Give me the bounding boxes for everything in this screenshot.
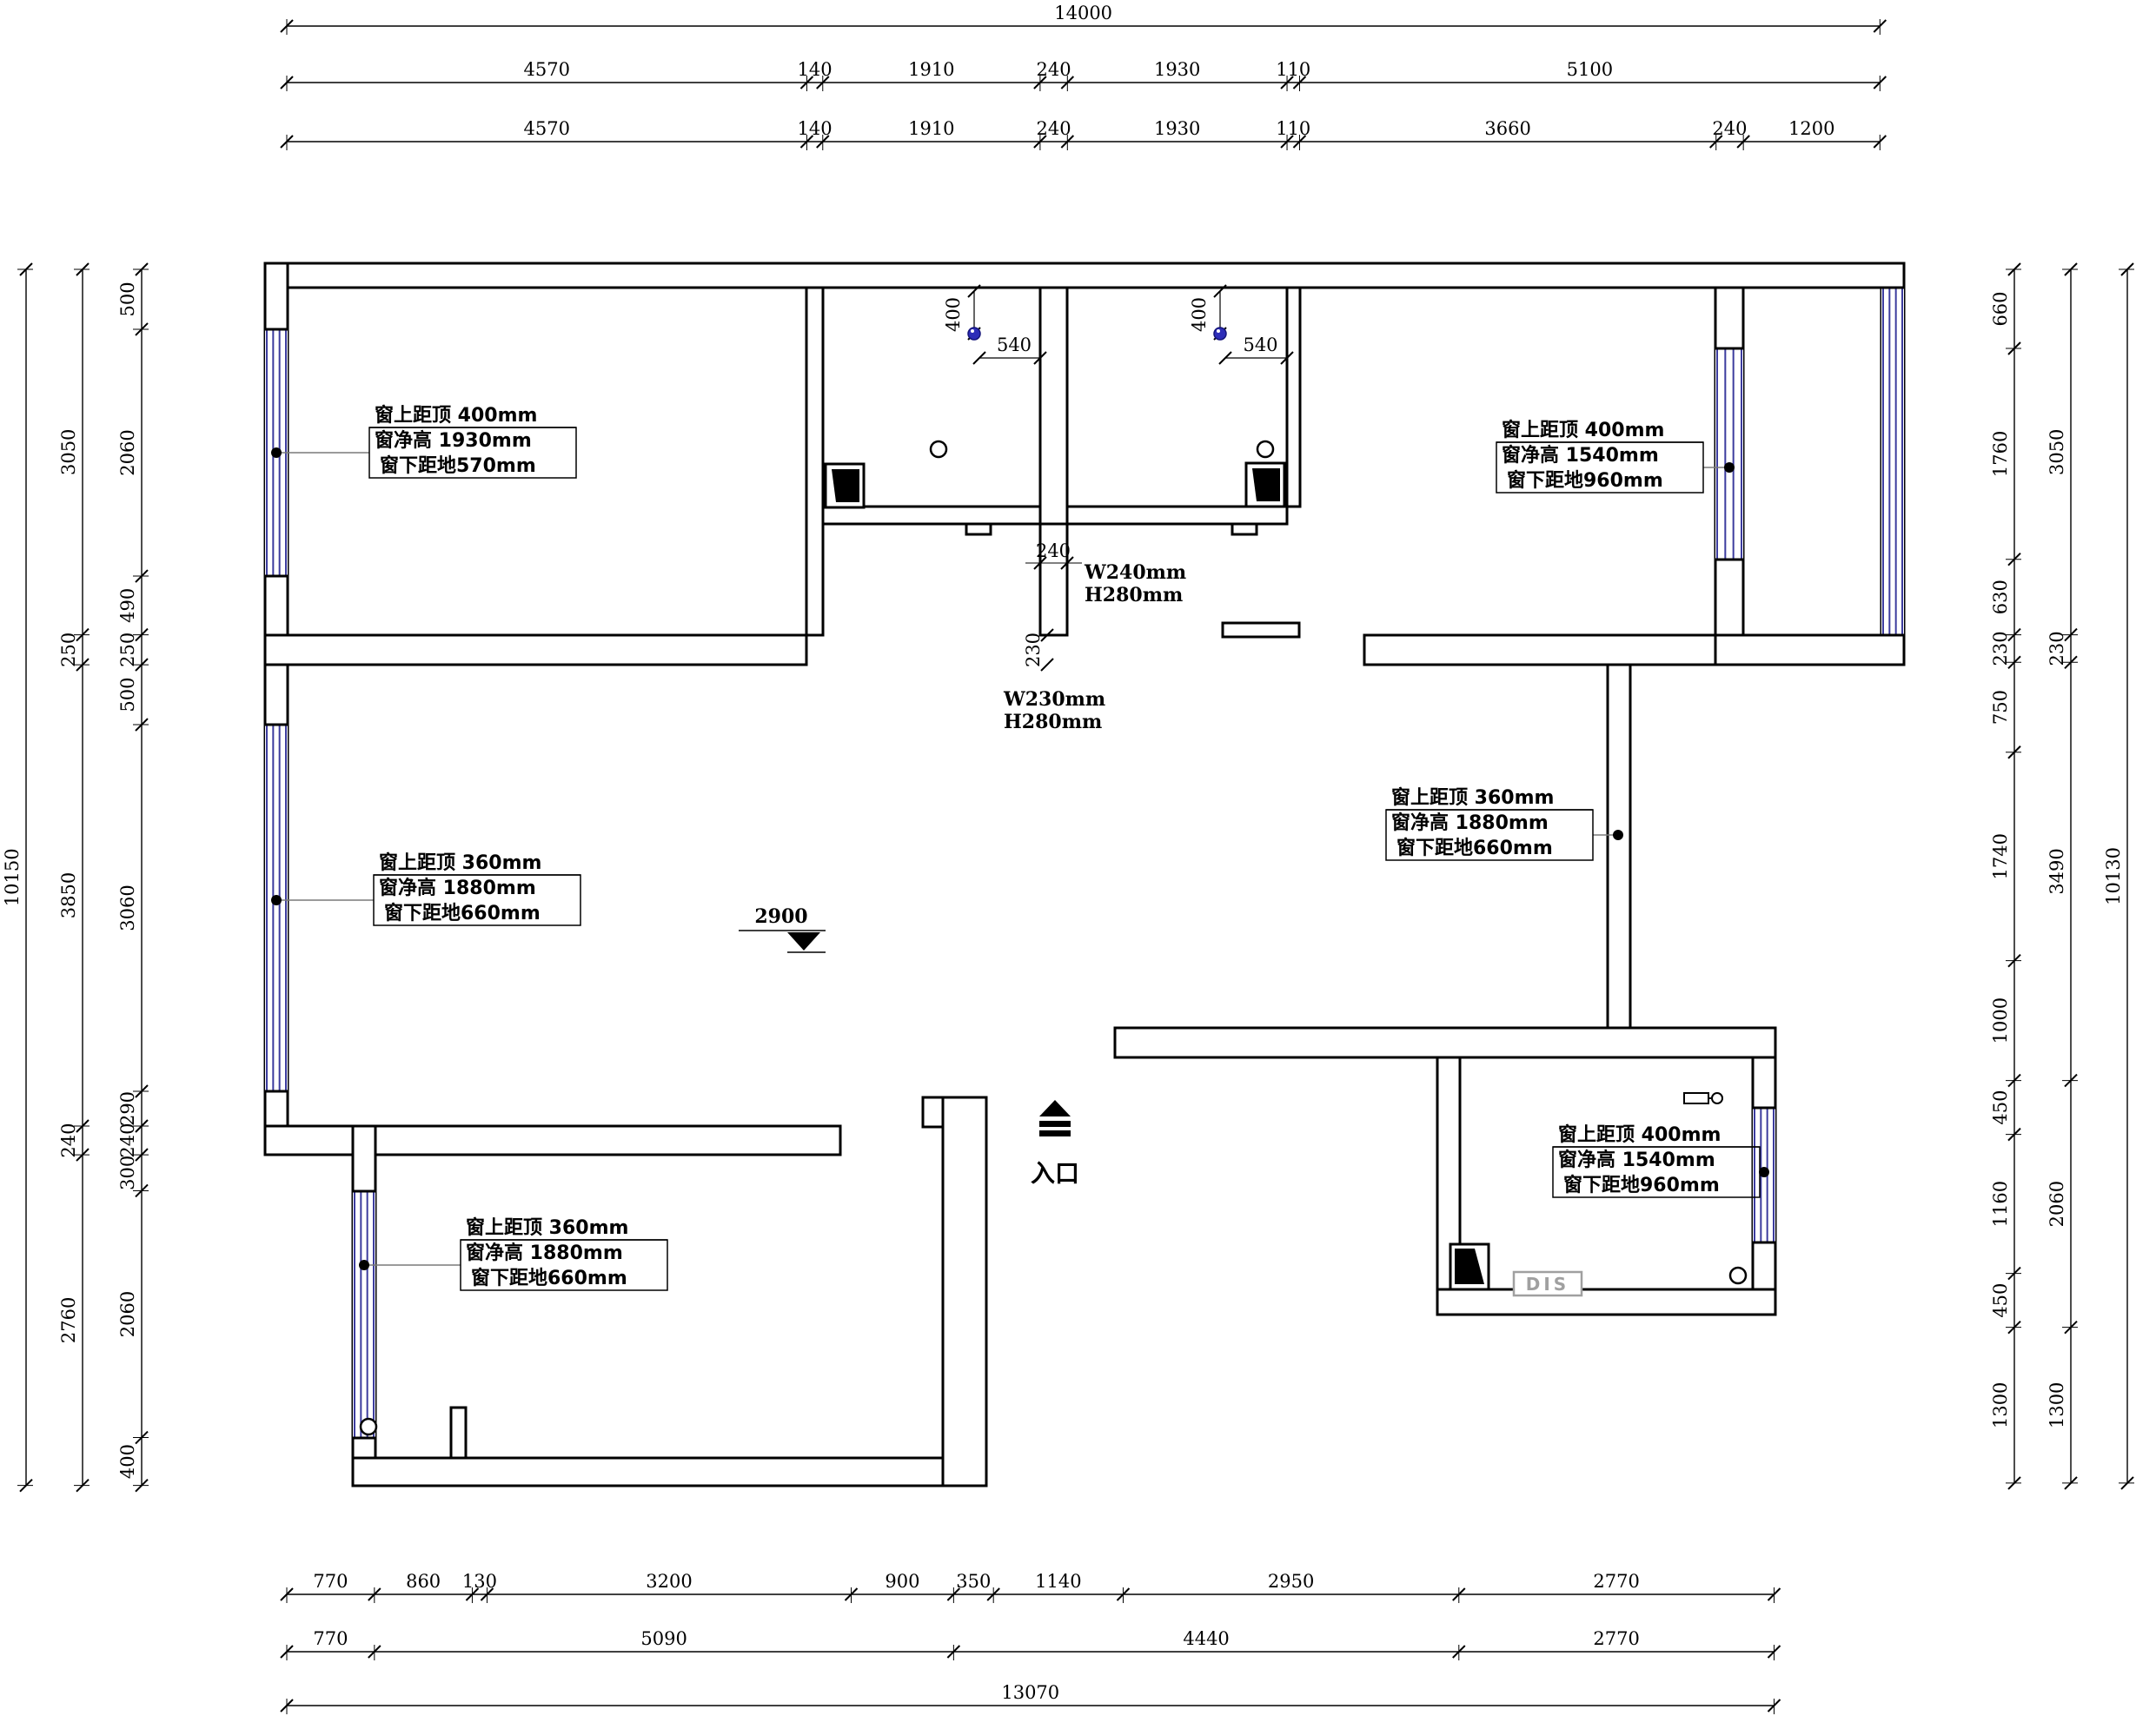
dim-value: 1300 [1990, 1382, 2011, 1428]
dim-bottom-row-2: 770509044402770 [281, 1628, 1781, 1660]
annotation-top-offset: 窗上距顶 400mm [375, 404, 537, 427]
elevation-triangle-icon [787, 932, 820, 951]
dim-value: 1140 [1035, 1571, 1081, 1592]
entrance-label: 入口 [1031, 1159, 1079, 1188]
bath1-light-dims: 400540 [943, 285, 1046, 364]
dim-value: 2760 [58, 1297, 79, 1343]
elevation-value: 2900 [754, 905, 807, 928]
dim-bottom-total: 13070 [281, 1682, 1781, 1714]
porch-top-wall [1115, 1028, 1775, 1057]
bath2-door-notch [1232, 524, 1257, 534]
window-living-left [265, 725, 288, 1091]
dim-value: 1000 [1990, 997, 2011, 1044]
annotation-sill-height: 窗下距地660mm [384, 902, 541, 924]
dim-value: 400 [1189, 297, 1210, 332]
drain-circle-bath2 [1257, 441, 1273, 457]
drain-circle-bath1 [931, 441, 946, 457]
dim-value: 5090 [640, 1628, 687, 1649]
annotation-sill-height: 窗下距地960mm [1507, 469, 1663, 492]
annotation-clear-height: 窗净高 1540mm [1502, 444, 1659, 467]
dim-value: 770 [313, 1628, 348, 1649]
entrance-symbol: 入口 [1031, 1100, 1079, 1188]
opening-w: W230mm [1003, 688, 1105, 711]
meter-icon [1684, 1093, 1722, 1103]
dim-value: 660 [1990, 291, 2011, 326]
balcony-bottom-wall [1715, 635, 1904, 665]
meter-body [1684, 1093, 1708, 1103]
dim-value: 240 [58, 1123, 79, 1157]
shower-fill [1252, 468, 1280, 501]
dim-left-inner: 500206049025050030602902403002060400 [117, 263, 149, 1492]
dim-value: 2060 [117, 1291, 138, 1337]
band-wall-step [1223, 623, 1299, 637]
dim-value: 240 [1036, 540, 1071, 561]
dim-left-middle: 305025038502402760 [58, 263, 90, 1492]
dim-left-outer: 10150 [2, 263, 33, 1492]
dim-value: 2060 [117, 429, 138, 475]
window-cavity [1715, 348, 1743, 560]
dim-value: 1740 [1990, 833, 2011, 879]
annotation-clear-height: 窗净高 1540mm [1558, 1149, 1715, 1171]
drain-circle-bl-room [361, 1419, 376, 1434]
dim-top-total: 14000 [281, 3, 1886, 35]
annotation-top-offset: 窗上距顶 360mm [466, 1216, 628, 1239]
floor-plan-canvas: 1400045701401910240193011051004570140191… [0, 0, 2156, 1716]
annotation-top-offset: 窗上距顶 360mm [379, 851, 541, 874]
dim-value: 14000 [1054, 3, 1112, 23]
dim-value: 10130 [2103, 847, 2124, 905]
annotation-top-offset: 窗上距顶 400mm [1558, 1123, 1721, 1146]
light-highlight [1217, 329, 1220, 333]
leader-dot [271, 447, 282, 458]
opening-w: W240mm [1084, 561, 1186, 584]
dim-value: 2950 [1268, 1571, 1314, 1592]
annotation-clear-height: 窗净高 1880mm [1391, 812, 1549, 834]
window-bl-room-left [353, 1191, 375, 1438]
dim-value: 230 [2047, 631, 2067, 666]
leader-dot [1724, 462, 1735, 473]
window-cavity [353, 1191, 375, 1438]
opening-230-label: 230W230mmH280mm [1003, 629, 1105, 733]
dim-top-row-3: 45701401910240193011036602401200 [281, 118, 1886, 150]
entry-column-notch [923, 1097, 943, 1127]
annotation-sill-height: 窗下距地960mm [1563, 1174, 1720, 1196]
bath1-left-wall [806, 288, 823, 635]
top-wall [265, 263, 1904, 288]
bath1-right-wall [1040, 288, 1067, 524]
leader-dot [271, 895, 282, 905]
window-balcony-right [1881, 288, 1904, 635]
leader-dot [1613, 830, 1623, 840]
dim-value: 110 [1276, 59, 1310, 80]
dim-value: 1910 [908, 118, 954, 139]
dim-value: 1200 [1788, 118, 1834, 139]
appliance-icon-br-room [1450, 1244, 1489, 1289]
dim-value: 860 [406, 1571, 441, 1592]
entrance-bar [1039, 1121, 1071, 1127]
dim-value: 10150 [2, 848, 23, 906]
opening-h: H280mm [1085, 584, 1183, 606]
dim-value: 1910 [908, 59, 954, 80]
dim-value: 350 [956, 1571, 991, 1592]
annotation-sill-height: 窗下距地660mm [471, 1267, 627, 1289]
dim-value: 290 [117, 1091, 138, 1126]
window-annotation-dining-right: 窗上距顶 360mm窗净高 1880mm窗下距地660mm [1386, 786, 1623, 860]
opening-h: H280mm [1004, 711, 1102, 733]
dim-value: 5100 [1567, 59, 1613, 80]
dim-value: 400 [943, 297, 964, 332]
dim-value: 540 [997, 335, 1032, 355]
dim-value: 240 [1037, 59, 1071, 80]
dim-value: 230 [1023, 633, 1044, 667]
meter-dial [1712, 1093, 1722, 1103]
dim-value: 140 [798, 59, 833, 80]
living-right-wall [1608, 665, 1630, 1028]
window-annotation-bedroom2-right: 窗上距顶 400mm窗净高 1540mm窗下距地960mm [1496, 419, 1735, 493]
shower-icon-bath1 [826, 464, 864, 507]
ceiling-light-icon [1214, 328, 1226, 340]
shower-icon-bath2 [1246, 463, 1284, 507]
dim-value: 3660 [1484, 118, 1530, 139]
dim-value: 450 [1990, 1090, 2011, 1125]
dim-value: 240 [117, 1123, 138, 1157]
dim-value: 3050 [2047, 429, 2067, 475]
dim-value: 770 [313, 1571, 348, 1592]
dim-value: 450 [1990, 1283, 2011, 1318]
dim-value: 3050 [58, 429, 79, 475]
dim-value: 400 [117, 1444, 138, 1479]
window-annotation-living-left: 窗上距顶 360mm窗净高 1880mm窗下距地660mm [271, 851, 580, 925]
drain-circle-br-room [1730, 1268, 1746, 1283]
dis-label: DIS [1514, 1272, 1582, 1295]
dim-value: 13070 [1001, 1682, 1059, 1703]
dim-right-inner: 66017606302307501740100045011604501300 [1990, 263, 2021, 1489]
dim-value: 2770 [1593, 1628, 1639, 1649]
entrance-bar [1039, 1130, 1071, 1136]
dim-value: 1760 [1990, 431, 2011, 477]
window-cavity [265, 725, 288, 1091]
entry-column [943, 1097, 986, 1486]
dim-value: 630 [1990, 580, 2011, 614]
dim-value: 3200 [646, 1571, 692, 1592]
dim-value: 3060 [117, 885, 138, 931]
leader-dot [359, 1260, 369, 1270]
dim-value: 1930 [1154, 59, 1200, 80]
annotation-sill-height: 窗下距地570mm [380, 454, 536, 477]
dim-value: 900 [885, 1571, 919, 1592]
entrance-arrow-icon [1039, 1100, 1071, 1116]
dim-value: 2770 [1593, 1571, 1639, 1592]
dim-right-middle: 3050230349020601300 [2047, 263, 2078, 1489]
dim-value: 490 [117, 588, 138, 623]
band-wall-left [265, 635, 806, 665]
window-cavity [1881, 288, 1904, 635]
ceiling-light-icon [968, 328, 980, 340]
dim-top-row-2: 4570140191024019301105100 [281, 59, 1886, 91]
dim-value: 110 [1276, 118, 1310, 139]
window-bedroom2-right [1715, 348, 1743, 560]
bl-room-top-wall [265, 1126, 840, 1155]
annotation-clear-height: 窗净高 1880mm [379, 877, 536, 899]
bl-room-stub [451, 1408, 466, 1458]
dim-right-outer: 10130 [2103, 263, 2134, 1489]
dim-value: 240 [1712, 118, 1747, 139]
annotation-clear-height: 窗净高 1930mm [375, 429, 532, 452]
dim-value: 1300 [2047, 1382, 2067, 1428]
dim-value: 750 [1990, 690, 2011, 725]
dim-bottom-row-1: 7708601303200900350114029502770 [281, 1571, 1781, 1603]
dim-value: 540 [1243, 335, 1277, 355]
leader-dot [1759, 1167, 1769, 1177]
bedroom2-bottom-wall [1364, 635, 1715, 665]
dim-value: 1930 [1154, 118, 1200, 139]
dim-value: 4440 [1183, 1628, 1229, 1649]
dim-value: 300 [117, 1156, 138, 1190]
light-highlight [971, 329, 974, 333]
dim-value: 250 [117, 633, 138, 667]
annotation-clear-height: 窗净高 1880mm [466, 1242, 623, 1264]
dim-value: 500 [117, 677, 138, 712]
window-annotation-bedroom1-left: 窗上距顶 400mm窗净高 1930mm窗下距地570mm [271, 404, 576, 478]
annotation-top-offset: 窗上距顶 400mm [1502, 419, 1664, 441]
shower-fill [832, 469, 859, 502]
dim-value: 4570 [523, 118, 569, 139]
bath2-right-wall [1287, 288, 1300, 507]
dim-value: 2060 [2047, 1181, 2067, 1227]
window-annotation-room-bottom-right: 窗上距顶 400mm窗净高 1540mm窗下距地960mm [1553, 1123, 1769, 1197]
dim-value: 130 [462, 1571, 497, 1592]
dis-text: DIS [1526, 1274, 1569, 1295]
elevation-marker: 2900 [739, 905, 826, 952]
window-annotation-room-bottom-left: 窗上距顶 360mm窗净高 1880mm窗下距地660mm [359, 1216, 667, 1290]
dim-value: 1160 [1990, 1181, 2011, 1227]
bath1-floor-wall [823, 507, 1040, 524]
dim-value: 230 [1990, 631, 2011, 666]
bath2-floor-wall [1067, 507, 1287, 524]
dim-value: 250 [58, 633, 79, 667]
dim-value: 240 [1037, 118, 1071, 139]
bl-room-floor-wall [353, 1458, 972, 1486]
bath2-light-dims: 400540 [1189, 285, 1293, 364]
br-room-floor-wall [1437, 1289, 1775, 1315]
dim-value: 500 [117, 282, 138, 316]
dim-value: 3850 [58, 872, 79, 918]
annotation-sill-height: 窗下距地660mm [1396, 837, 1553, 859]
dim-value: 3490 [2047, 848, 2067, 894]
annotation-top-offset: 窗上距顶 360mm [1391, 786, 1554, 809]
dim-value: 140 [798, 118, 833, 139]
bath1-door-notch [966, 524, 991, 534]
dim-value: 4570 [523, 59, 569, 80]
